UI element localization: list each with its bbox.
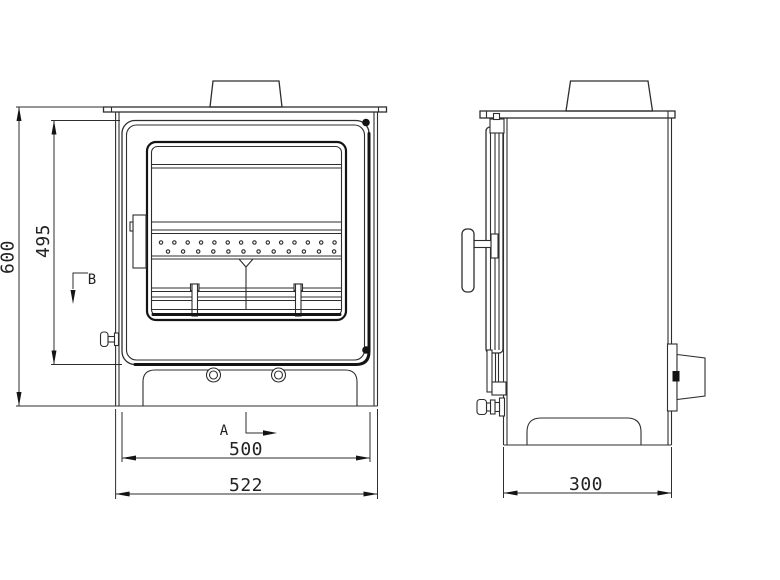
- leg-arch-side: [527, 418, 641, 445]
- flue-collar-front: [210, 81, 282, 107]
- dimension-overall-depth: 300: [504, 447, 672, 498]
- hinge-top-side: [490, 119, 504, 133]
- drawing-canvas: 600 495 500 522 300 A: [0, 0, 780, 580]
- side-view: [462, 81, 705, 445]
- dim-label-inner-width: 500: [229, 439, 263, 460]
- door-handle-plate: [130, 215, 146, 268]
- door-window: [147, 142, 346, 320]
- airwash-vent-holes: [159, 241, 336, 253]
- latch-bracket-side: [492, 382, 506, 395]
- dim-label-door-height: 495: [33, 224, 54, 258]
- flue-collar-side: [566, 81, 653, 111]
- dimension-door-height: 495: [33, 121, 122, 365]
- air-control-knob-front: [101, 332, 119, 347]
- datum-label-b: B: [88, 272, 96, 288]
- top-plate-side: [480, 111, 675, 118]
- stove-technical-drawing: 600 495 500 522 300 A: [0, 0, 780, 580]
- datum-label-a: A: [220, 423, 229, 439]
- datum-arrow-a: A: [220, 412, 277, 439]
- hinge-pin-top: [362, 119, 370, 127]
- dim-label-overall-width: 522: [229, 475, 263, 496]
- hinge-pin-bottom: [362, 346, 370, 354]
- dim-label-overall-height: 600: [0, 240, 19, 274]
- leg-arch-front: [143, 370, 357, 406]
- front-view: [16, 81, 387, 406]
- baffle-notch: [239, 259, 253, 267]
- air-control-knob-side: [477, 398, 505, 416]
- datum-arrow-b: B: [71, 272, 97, 304]
- rear-outlet: [668, 344, 706, 411]
- stove-body-side: [504, 118, 672, 445]
- dim-label-overall-depth: 300: [569, 474, 603, 495]
- top-plate-front: [104, 107, 387, 112]
